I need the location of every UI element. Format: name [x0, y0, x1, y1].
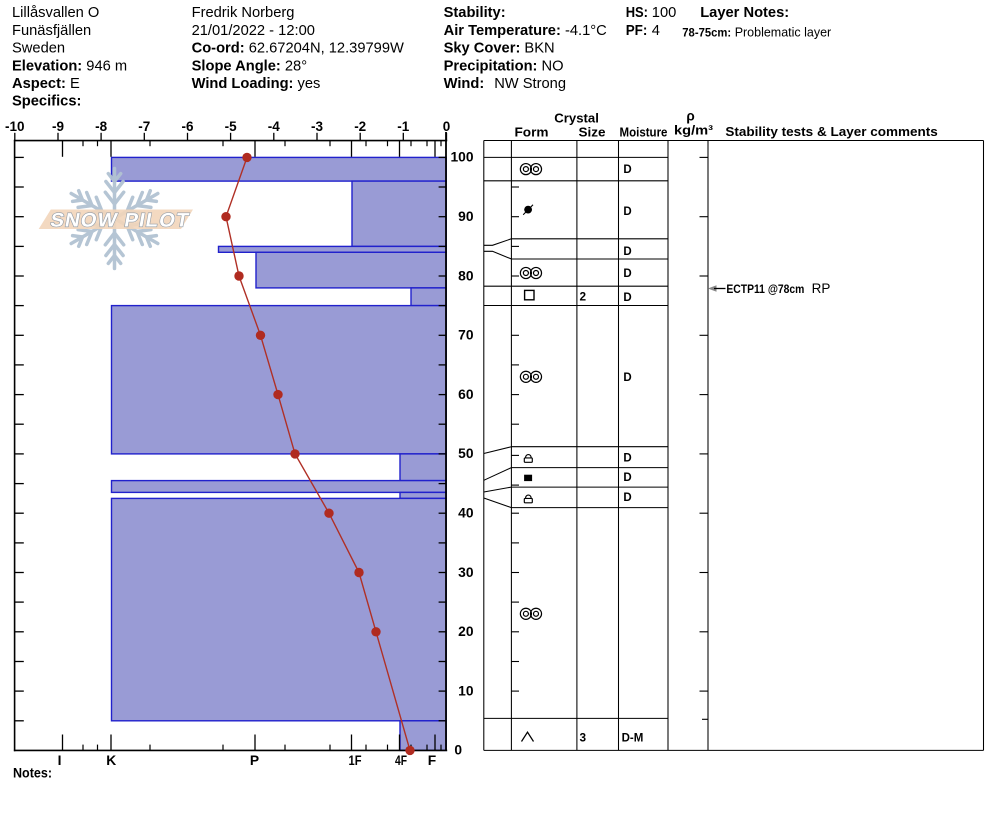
- svg-text:D: D: [623, 268, 631, 280]
- svg-text:ECTP11 @78cm: ECTP11 @78cm: [726, 282, 804, 296]
- svg-text:20: 20: [458, 624, 474, 639]
- svg-text:K: K: [106, 753, 116, 768]
- svg-text:I: I: [58, 753, 62, 768]
- svg-text:D: D: [623, 453, 631, 465]
- svg-text:D: D: [623, 206, 631, 218]
- svg-text:Size: Size: [579, 124, 606, 139]
- svg-text:10: 10: [458, 683, 474, 698]
- svg-text:30: 30: [458, 565, 474, 580]
- svg-text:PF:4: PF:4: [626, 23, 660, 39]
- svg-text:70: 70: [458, 328, 474, 343]
- svg-text:RP: RP: [812, 281, 831, 296]
- svg-text:D-M: D-M: [622, 732, 644, 744]
- svg-text:Specifics:: Specifics:: [12, 94, 81, 110]
- svg-text:kg/m³: kg/m³: [674, 123, 714, 138]
- svg-text:-8: -8: [95, 119, 107, 134]
- svg-text:D: D: [623, 372, 631, 384]
- svg-text:Elevation: 946 m: Elevation: 946 m: [12, 58, 127, 74]
- svg-text:Co-ord: 62.67204N, 12.39799W: Co-ord: 62.67204N, 12.39799W: [192, 41, 404, 57]
- svg-text:50: 50: [458, 446, 474, 461]
- svg-text:Slope Angle: 28°: Slope Angle: 28°: [192, 58, 308, 74]
- svg-text:-10: -10: [5, 119, 25, 134]
- svg-text:Layer Notes:: Layer Notes:: [700, 5, 789, 21]
- svg-text:2: 2: [580, 290, 587, 304]
- svg-text:Fredrik Norberg: Fredrik Norberg: [192, 5, 295, 21]
- svg-text:40: 40: [458, 506, 474, 521]
- svg-text:P: P: [250, 753, 259, 768]
- svg-text:Moisture: Moisture: [620, 124, 668, 139]
- svg-text:-6: -6: [181, 119, 193, 134]
- svg-text:-1: -1: [397, 119, 409, 134]
- svg-text:80: 80: [458, 268, 474, 283]
- svg-text:Notes:: Notes:: [13, 765, 52, 781]
- svg-text:21/01/2022 - 12:00: 21/01/2022 - 12:00: [192, 23, 315, 39]
- svg-text:0: 0: [443, 119, 451, 134]
- svg-text:Aspect: E: Aspect: E: [12, 76, 80, 92]
- svg-text:90: 90: [458, 209, 474, 224]
- svg-text:Stability:: Stability:: [444, 5, 506, 21]
- svg-text:Funäsfjällen: Funäsfjällen: [12, 23, 91, 39]
- svg-text:Air Temperature: -4.1°C: Air Temperature: -4.1°C: [444, 23, 608, 39]
- svg-text:SNOW PILOT: SNOW PILOT: [49, 209, 192, 231]
- svg-text:HS:100: HS:100: [626, 5, 677, 21]
- svg-text:Sweden: Sweden: [12, 41, 65, 57]
- svg-text:-9: -9: [52, 119, 64, 134]
- svg-text:ρ: ρ: [686, 109, 694, 124]
- svg-text:Wind Loading: yes: Wind Loading: yes: [192, 76, 321, 92]
- svg-text:78-75cm:Problematic layer: 78-75cm:Problematic layer: [682, 24, 832, 39]
- svg-text:60: 60: [458, 387, 474, 402]
- svg-text:1F: 1F: [349, 753, 362, 768]
- svg-text:4F: 4F: [395, 753, 407, 768]
- svg-text:Crystal: Crystal: [554, 111, 599, 126]
- svg-text:0: 0: [454, 743, 462, 758]
- svg-text:Stability tests & Layer commen: Stability tests & Layer comments: [725, 124, 937, 139]
- svg-text:-2: -2: [354, 119, 366, 134]
- svg-text:-5: -5: [225, 119, 237, 134]
- svg-text:D: D: [623, 472, 631, 484]
- svg-text:Wind:NW Strong: Wind:NW Strong: [444, 76, 566, 92]
- svg-text:Precipitation: NO: Precipitation: NO: [444, 58, 564, 74]
- svg-text:D: D: [623, 164, 631, 176]
- svg-text:Lillåsvallen O: Lillåsvallen O: [12, 5, 99, 21]
- svg-text:100: 100: [450, 150, 473, 165]
- svg-text:D: D: [623, 492, 631, 504]
- svg-text:-7: -7: [138, 119, 150, 134]
- svg-text:F: F: [428, 753, 436, 768]
- svg-text:3: 3: [580, 730, 587, 744]
- svg-text:D: D: [623, 292, 631, 304]
- svg-text:Sky Cover: BKN: Sky Cover: BKN: [444, 41, 555, 57]
- svg-text:-4: -4: [268, 119, 280, 134]
- svg-text:D: D: [623, 246, 631, 258]
- svg-text:-3: -3: [311, 119, 323, 134]
- svg-text:Form: Form: [515, 124, 549, 139]
